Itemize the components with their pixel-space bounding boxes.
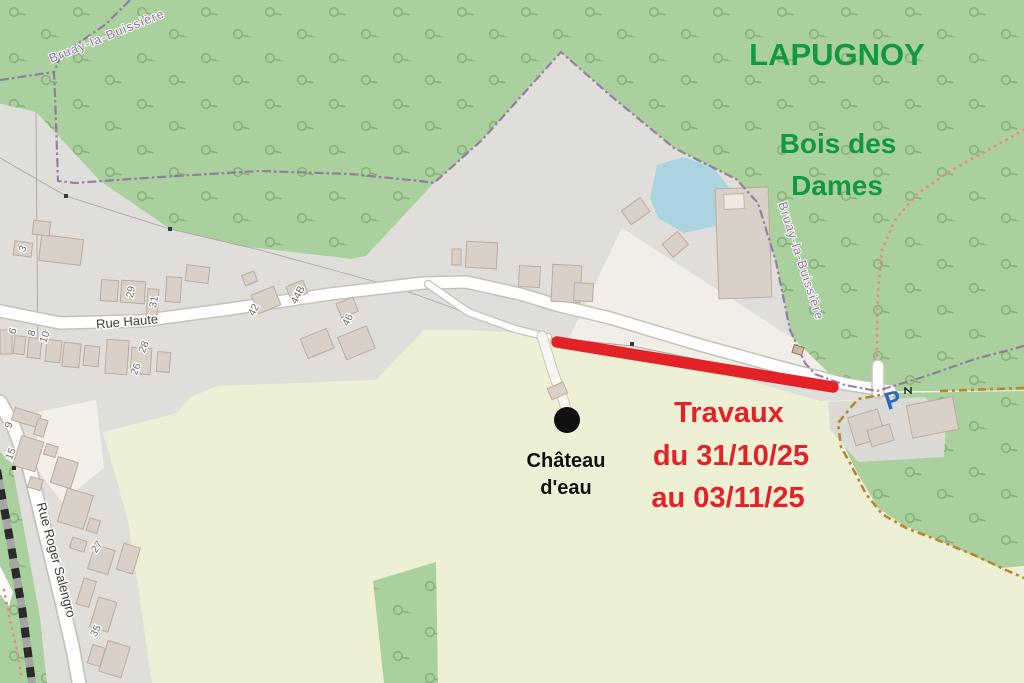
map-canvas: Rue Haute Rue Roger Salengro Bruay-la-Bu… xyxy=(0,0,1024,683)
works-notice-line1: Travaux xyxy=(674,397,784,429)
map-image: Rue Haute Rue Roger Salengro Bruay-la-Bu… xyxy=(0,0,1024,683)
water-tower-label-line1: Château xyxy=(527,450,606,472)
water-tower-label-line2: d'eau xyxy=(540,477,591,499)
wooded-patch xyxy=(373,562,438,683)
forest-name-line1: Bois des xyxy=(780,128,897,159)
place-label-lapugnoy: LAPUGNOY xyxy=(749,37,925,72)
forest-name-line2: Dames xyxy=(791,170,883,201)
svg-text:29: 29 xyxy=(124,285,138,299)
water-tower-marker xyxy=(554,407,580,433)
svg-text:31: 31 xyxy=(147,295,161,309)
works-notice-line3: au 03/11/25 xyxy=(651,482,804,514)
works-notice-line2: du 31/10/25 xyxy=(653,440,809,472)
